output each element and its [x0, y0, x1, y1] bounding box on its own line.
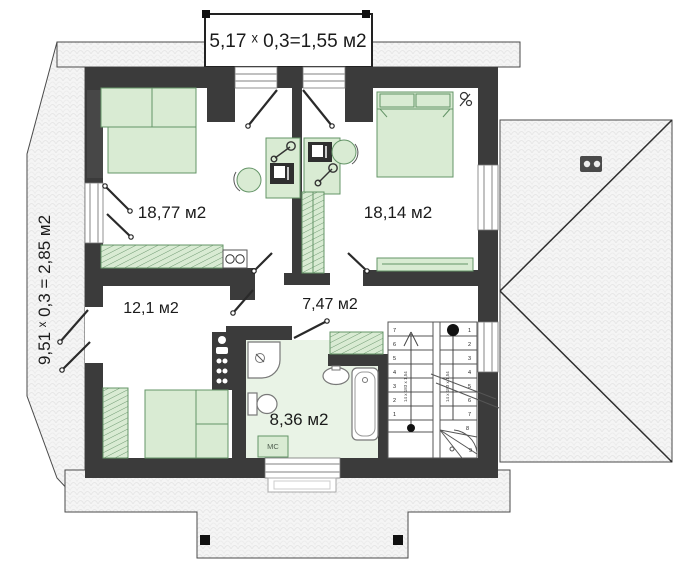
- step-number: 1: [393, 412, 396, 418]
- wall-pier: [207, 88, 235, 122]
- shelf-column: [212, 332, 232, 390]
- step-number: 3: [468, 356, 471, 362]
- wall-top-left: [85, 67, 235, 88]
- step-number: 1: [468, 328, 471, 334]
- floor-plan-canvas: МС: [0, 0, 700, 575]
- wall-dormer-center-pier: [277, 67, 303, 88]
- room-area-label-bedroom-1: 18,77 м2: [138, 203, 206, 222]
- washing-machine-label: МС: [267, 442, 279, 451]
- wall-bathroom-bench: [328, 354, 385, 366]
- step-number: 6: [393, 342, 396, 348]
- stair-annotation-left: 14 x 183 x 1,54: [403, 371, 408, 402]
- side-dimension-label: 9,51 ˣ 0,3 = 2,85 м2: [35, 215, 54, 365]
- wall-divider-room2: [363, 270, 478, 286]
- wall-bathroom-top: [226, 326, 292, 340]
- wall-right-2: [478, 230, 498, 322]
- room-area-label-bedroom-2: 18,14 м2: [364, 203, 432, 222]
- hall-bench: [330, 332, 383, 354]
- wall-right-1: [478, 88, 498, 165]
- chair: [237, 168, 261, 192]
- double-bed: [377, 92, 453, 177]
- step-number: 9: [469, 448, 472, 454]
- stair-start-dot: [447, 324, 459, 336]
- shower: [248, 342, 280, 378]
- wardrobe-room2: [302, 192, 324, 273]
- washing-machine: МС: [258, 436, 288, 457]
- top-eaves-right: [372, 42, 520, 67]
- wall-bottom-left: [85, 458, 265, 478]
- roof-vent-icon: [580, 156, 602, 172]
- bed-room3: [145, 390, 228, 458]
- window-left: [85, 183, 103, 243]
- room-area-label-bathroom: 8,36 м2: [270, 410, 329, 429]
- top-eaves-left: [57, 42, 205, 67]
- step-number: 3: [393, 384, 396, 390]
- wall-divider-room1-room3: [85, 268, 255, 286]
- room-area-label-hallway: 7,47 м2: [302, 296, 358, 313]
- dormer-window-1: [235, 67, 277, 88]
- room-area-label-bedroom-3: 12,1 м2: [123, 300, 179, 317]
- wall-left-3: [85, 363, 103, 478]
- step-number: 2: [468, 342, 471, 348]
- wall-bathroom-left: [232, 340, 246, 458]
- bathtub: [352, 368, 378, 440]
- dormer-window-2: [303, 67, 345, 88]
- nightstand: [223, 250, 247, 268]
- wall-bottom-right: [340, 458, 498, 478]
- dresser-room2: [377, 258, 473, 271]
- dormer-dimension-label: 5,17 ˣ 0,3=1,55 м2: [209, 31, 366, 52]
- stair-annotation-right: 14 x 183 x 1,54: [445, 371, 450, 402]
- step-number: 5: [468, 384, 471, 390]
- wall-top-right: [345, 67, 498, 88]
- step-number: 8: [466, 426, 469, 432]
- wall-stairwell-left: [378, 354, 388, 458]
- porch-post: [393, 535, 403, 545]
- attic-floor-plan: МС: [0, 0, 700, 575]
- step-number: 2: [393, 398, 396, 404]
- desk-left: [266, 138, 300, 198]
- step-number: 6: [468, 398, 471, 404]
- step-number: 4: [393, 370, 396, 376]
- step-number: 7: [468, 412, 471, 418]
- window-bottom: [265, 458, 340, 492]
- step-number: 5: [393, 356, 396, 362]
- porch-post: [200, 535, 210, 545]
- wall-central-cap: [284, 273, 330, 285]
- step-number: 7: [393, 328, 396, 334]
- right-hip-roof: [500, 120, 672, 462]
- stair-landing: [388, 432, 433, 458]
- wall-pier: [345, 88, 373, 122]
- window-right-2: [478, 322, 498, 372]
- chair: [332, 140, 356, 164]
- step-number: 4: [468, 370, 471, 376]
- window-right-1: [478, 165, 498, 230]
- wardrobe-room3: [103, 388, 128, 458]
